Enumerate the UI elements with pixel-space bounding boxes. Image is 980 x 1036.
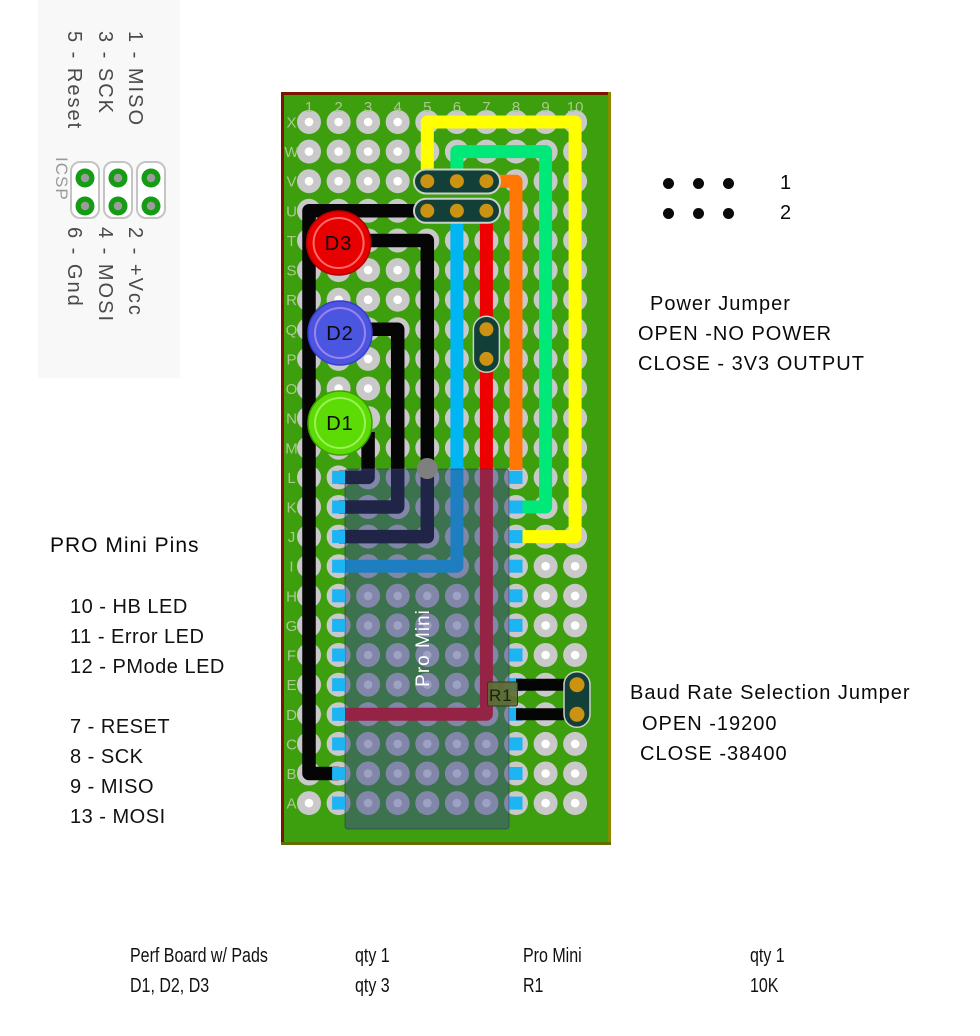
pad-hole: [541, 799, 550, 808]
jumper-pin-dot: [693, 208, 704, 219]
pad-hole: [393, 118, 402, 127]
pad-hole: [571, 651, 580, 660]
baud-jumper-close-line: CLOSE -38400: [640, 743, 788, 766]
pad-hole: [541, 651, 550, 660]
pad-hole: [571, 562, 580, 571]
pro-mini-pin: [332, 501, 345, 514]
pad-hole: [571, 769, 580, 778]
pro-mini-pin: [332, 678, 345, 691]
pad-hole: [541, 769, 550, 778]
col-label: 5: [423, 99, 431, 116]
pad-hole: [571, 740, 580, 749]
row-label: W: [284, 144, 299, 161]
baud-jumper-open-line: OPEN -19200: [642, 713, 778, 736]
icsp-pad-grid: [71, 162, 165, 218]
row-label: U: [286, 203, 297, 220]
col-label: 6: [453, 99, 461, 116]
pad-hole: [541, 562, 550, 571]
power-jumper-close-line: CLOSE - 3V3 OUTPUT: [638, 353, 865, 376]
pad-hole: [541, 592, 550, 601]
header-pad: [479, 322, 493, 336]
pad-hole: [364, 147, 373, 156]
icsp-pin-label-reset: 5 - Reset: [62, 31, 85, 130]
pad-hole: [364, 266, 373, 275]
row-label: N: [286, 411, 297, 428]
row-label: V: [286, 174, 296, 191]
header-pad: [570, 677, 585, 692]
icsp-pad-hole: [81, 174, 89, 182]
icsp-pin-label-gnd: 6 - Gnd: [62, 227, 85, 308]
parts-cell: R1: [523, 975, 543, 998]
led-label: D2: [326, 323, 354, 345]
pro-mini-pin: [332, 530, 345, 543]
row-label: H: [286, 588, 297, 605]
board-border-left: [281, 92, 284, 845]
pro-mini-pins-title: PRO Mini Pins: [50, 534, 200, 558]
header-pad: [570, 707, 585, 722]
icsp-pin-label-sck: 3 - SCK: [93, 31, 116, 115]
col-label: 7: [482, 99, 490, 116]
pro-mini-pins-group1: 10 - HB LED 11 - Error LED 12 - PMode LE…: [70, 592, 225, 682]
pin-list-item: 13 - MOSI: [70, 802, 170, 832]
pro-mini-pin: [332, 737, 345, 750]
row-label: Q: [286, 322, 298, 339]
pad-hole: [393, 295, 402, 304]
power-jumper-header: [473, 316, 499, 372]
pad-hole: [393, 266, 402, 275]
pad-hole: [364, 384, 373, 393]
parts-cell: Perf Board w/ Pads: [130, 945, 268, 968]
col-label: 4: [394, 99, 402, 116]
led-d2: D2: [308, 301, 372, 365]
led-label: D3: [325, 233, 353, 255]
pad-hole: [571, 592, 580, 601]
led-label: D1: [326, 413, 354, 435]
pro-mini-pin: [332, 767, 345, 780]
row-label: J: [288, 529, 296, 546]
pro-mini-pin: [510, 737, 523, 750]
pro-mini-pin: [510, 501, 523, 514]
pad-hole: [334, 177, 343, 186]
resistor-label: R1: [489, 686, 513, 705]
row-label: X: [286, 115, 296, 132]
parts-cell: qty 3: [355, 975, 390, 998]
pad-hole: [541, 740, 550, 749]
pro-mini-pins-group2: 7 - RESET 8 - SCK 9 - MISO 13 - MOSI: [70, 712, 170, 832]
board-border-bottom: [281, 842, 611, 845]
pro-mini-pin: [510, 560, 523, 573]
row-label: P: [286, 351, 296, 368]
parts-cell: qty 1: [750, 945, 785, 968]
pro-mini-pin: [332, 471, 345, 484]
col-label: 2: [334, 99, 342, 116]
pad-hole: [305, 177, 314, 186]
pro-mini-pin: [510, 589, 523, 602]
parts-cell: 10K: [750, 975, 778, 998]
pro-mini-pin: [332, 560, 345, 573]
pad-hole: [305, 799, 314, 808]
pro-mini-pin: [510, 619, 523, 632]
col-label: 8: [512, 99, 520, 116]
col-label: 10: [567, 99, 584, 116]
row-label: L: [287, 470, 295, 487]
icsp-pin-label-mosi: 4 - MOSI: [93, 227, 116, 323]
icsp-header-bottom-row: [414, 199, 500, 223]
jumper-pin-dot: [663, 208, 674, 219]
baud-jumper-header: [564, 672, 590, 728]
pro-mini-pin: [510, 471, 523, 484]
pro-mini-pin: [510, 797, 523, 810]
row-label: A: [286, 796, 296, 813]
pad-hole: [364, 177, 373, 186]
col-label: 1: [305, 99, 313, 116]
header-pad: [420, 204, 434, 218]
pro-mini-pin: [332, 797, 345, 810]
pro-mini-pin: [332, 619, 345, 632]
parts-cell: qty 1: [355, 945, 390, 968]
icsp-header-top-row: [414, 170, 500, 194]
pin-list-item: 7 - RESET: [70, 712, 170, 742]
row-label: D: [286, 707, 297, 724]
board-border-top: [281, 92, 611, 95]
icsp-pad-hole: [81, 202, 89, 210]
row-label: G: [286, 618, 298, 635]
pro-mini-pin: [510, 767, 523, 780]
perfboard: D3 D2 D1 Pro Mini R1 XWVUTSRQPONMLKJIHGF…: [281, 92, 611, 845]
icsp-pad-hole: [147, 174, 155, 182]
icsp-connector: [55, 156, 175, 226]
parts-cell: Pro Mini: [523, 945, 582, 968]
jumper-pin-dot: [693, 178, 704, 189]
pad-hole: [305, 147, 314, 156]
header-pad: [479, 204, 493, 218]
icsp-pin-label-miso: 1 - MISO: [123, 31, 146, 127]
row-label: R: [286, 292, 297, 309]
pin-list-item: 9 - MISO: [70, 772, 170, 802]
pad-hole: [393, 177, 402, 186]
header-pad: [479, 174, 493, 188]
parts-cell: D1, D2, D3: [130, 975, 209, 998]
pro-mini-pin: [332, 708, 345, 721]
icsp-pad-hole: [114, 202, 122, 210]
header-pad: [479, 352, 493, 366]
pin-list-item: 10 - HB LED: [70, 592, 225, 622]
row-label: F: [287, 648, 296, 665]
power-jumper-open-line: OPEN -NO POWER: [638, 323, 832, 346]
row-label: O: [286, 381, 298, 398]
row-label: B: [286, 766, 296, 783]
pad-hole: [364, 118, 373, 127]
pin-list-item: 12 - PMode LED: [70, 652, 225, 682]
row-label: C: [286, 736, 297, 753]
icsp-pin-label-vcc: 2 - +Vcc: [123, 227, 146, 317]
row-label: M: [285, 440, 298, 457]
row-label: T: [287, 233, 296, 250]
pro-mini-pin: [510, 649, 523, 662]
resistor-r1: R1: [488, 682, 518, 706]
board-border-right: [608, 92, 611, 845]
header-pad: [420, 174, 434, 188]
pin-list-item: 11 - Error LED: [70, 622, 225, 652]
pad-hole: [334, 118, 343, 127]
jumper-pin-dot: [723, 208, 734, 219]
pad-hole: [571, 621, 580, 630]
col-label: 3: [364, 99, 372, 116]
row-label: K: [286, 500, 296, 517]
pro-mini-pin: [332, 649, 345, 662]
pad-hole: [364, 295, 373, 304]
power-jumper-title: Power Jumper: [650, 293, 791, 316]
pad-hole: [305, 118, 314, 127]
pad-hole: [364, 355, 373, 364]
baud-jumper-title: Baud Rate Selection Jumper: [630, 682, 911, 705]
jumper-pin-dot: [663, 178, 674, 189]
pro-mini-pin: [510, 530, 523, 543]
icsp-pad-hole: [147, 202, 155, 210]
jumper-row-2-label: 2: [780, 202, 792, 225]
icsp-pad-hole: [114, 174, 122, 182]
row-label: I: [289, 559, 293, 576]
col-label: 9: [541, 99, 549, 116]
header-pad: [450, 204, 464, 218]
pad-hole: [541, 621, 550, 630]
led-d1: D1: [308, 391, 372, 455]
pro-mini-pin: [332, 589, 345, 602]
wire-end-cap: [417, 458, 438, 479]
row-label: E: [286, 677, 296, 694]
jumper-pin-dot: [723, 178, 734, 189]
pad-hole: [393, 147, 402, 156]
pin-list-item: 8 - SCK: [70, 742, 170, 772]
pad-hole: [571, 799, 580, 808]
pro-mini-label: Pro Mini: [413, 609, 434, 687]
pad-hole: [334, 147, 343, 156]
jumper-row-1-label: 1: [780, 172, 792, 195]
led-d3: D3: [307, 211, 371, 275]
row-label: S: [286, 263, 296, 280]
header-pad: [450, 174, 464, 188]
